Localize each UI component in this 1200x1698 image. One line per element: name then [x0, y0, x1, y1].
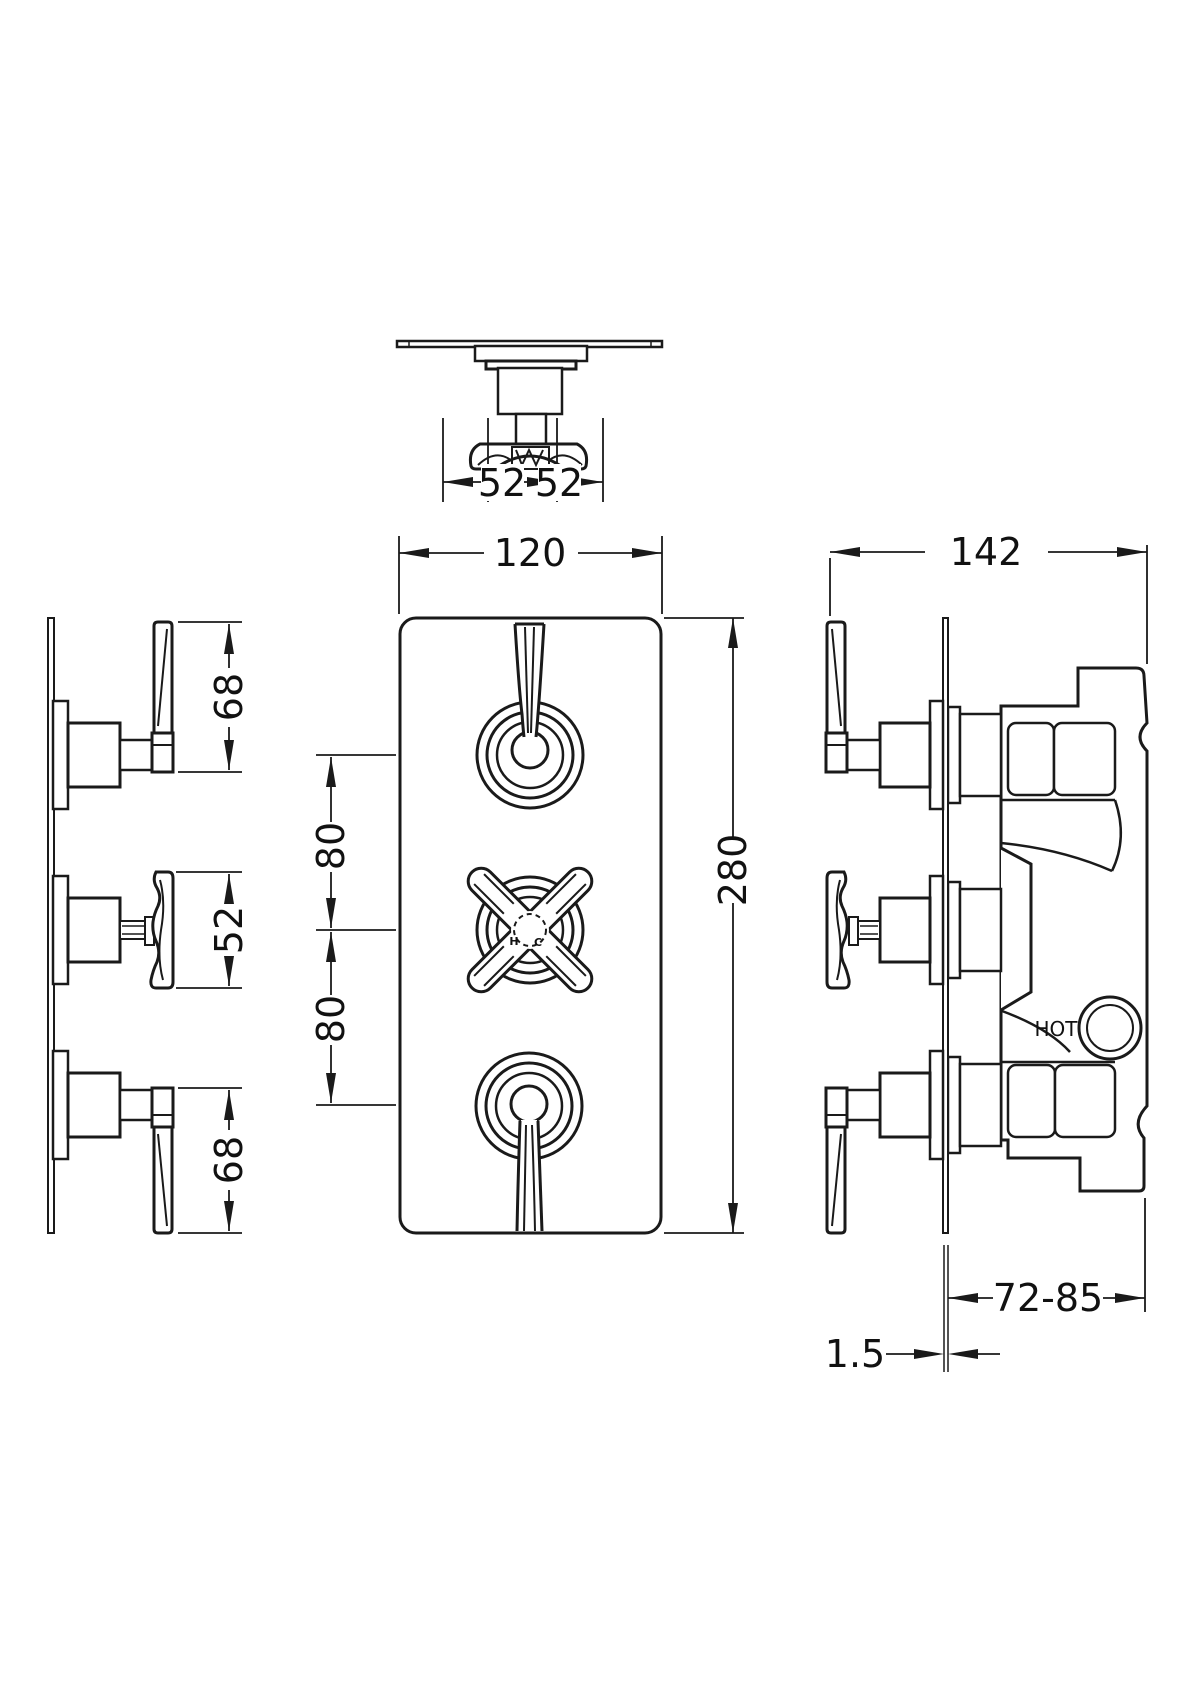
bottom-lever-handle [152, 1088, 173, 1233]
hot-inlet-port-bore [1087, 1005, 1133, 1051]
bottom-lever-handle [826, 1088, 847, 1233]
handle-body [68, 898, 120, 962]
dim-lever-top-value: 68 [207, 673, 251, 721]
dim-spacing-upper: 80 [309, 755, 396, 930]
dim-cross-52-value: 52 [207, 906, 251, 954]
valve-dimension-drawing: H C [0, 0, 1200, 1698]
dim-spacing-upper-value: 80 [309, 822, 353, 870]
escutcheon-flange [53, 701, 68, 809]
dim-lever-top: 68 [178, 622, 251, 772]
dim-lever-bottom-value: 68 [207, 1136, 251, 1184]
dim-plate-width-value: 120 [494, 531, 567, 575]
dim-plate-width: 120 [399, 531, 662, 614]
dim-cross-52: 52 [176, 872, 251, 988]
top-lever-handle [152, 622, 173, 772]
valve-collars [948, 707, 1001, 1153]
technical-drawing-page: H C [0, 0, 1200, 1698]
handle-stem [516, 414, 546, 446]
escutcheon-flanges [930, 701, 943, 1159]
handle-body [68, 1073, 120, 1137]
lever-ball [511, 1086, 547, 1122]
hot-mark: H [509, 935, 518, 948]
dim-lever-bottom: 68 [178, 1088, 251, 1233]
cartridge-bonnet [1001, 848, 1031, 1010]
dim-spacing-lower: 80 [309, 932, 396, 1105]
handle-bodies [847, 723, 930, 1137]
dim-overall-depth: 142 [830, 530, 1147, 664]
cross-handle-profile [827, 872, 849, 988]
front-view: H C [400, 618, 661, 1233]
escutcheon-flange [475, 346, 587, 361]
top-lever-handle [826, 622, 847, 772]
lever-ball [512, 732, 548, 768]
handle-stem [120, 740, 153, 770]
dim-plate-thickness: 1.5 [825, 1332, 1000, 1376]
cross-handle-profile [151, 872, 173, 988]
handle-stem [120, 1090, 153, 1120]
top-port-block [1054, 723, 1115, 795]
cold-mark: C [534, 936, 542, 949]
bottom-port-block [1008, 1065, 1055, 1137]
escutcheon-flange [53, 876, 68, 984]
right-side-view: HOT [826, 618, 1147, 1233]
cross-handle-spindle [120, 917, 154, 945]
top-view [397, 341, 662, 469]
handle-body [68, 723, 120, 787]
dim-plate-thickness-value: 1.5 [825, 1332, 885, 1376]
escutcheon-flange [53, 1051, 68, 1159]
dim-top-52-right: 52 [535, 461, 583, 505]
dim-plate-height: 280 [664, 618, 755, 1233]
dim-plate-height-value: 280 [711, 834, 755, 907]
bottom-port-block [1055, 1065, 1115, 1137]
left-side-view [48, 618, 173, 1233]
dim-overall-depth-value: 142 [950, 530, 1023, 574]
dim-recess-depth: 72-85 [944, 1198, 1145, 1372]
handle-body [498, 368, 562, 414]
dim-spacing-lower-value: 80 [309, 995, 353, 1043]
hot-label: HOT [1035, 1017, 1079, 1041]
dim-top-52-left: 52 [478, 461, 526, 505]
dim-recess-depth-value: 72-85 [993, 1276, 1103, 1320]
top-port-block [1008, 723, 1054, 795]
